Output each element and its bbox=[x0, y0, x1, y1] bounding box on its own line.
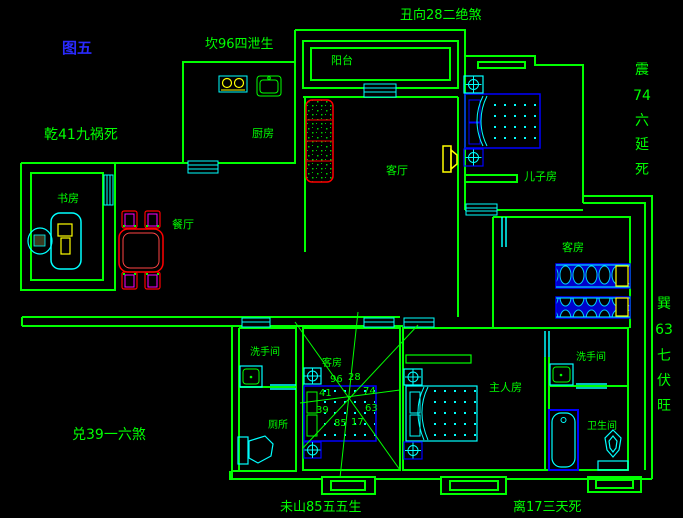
compass-number-28: 28 bbox=[348, 372, 361, 383]
room-label-dining: 餐厅 bbox=[172, 217, 194, 231]
compass-number-85: 85 bbox=[334, 418, 347, 429]
balcony-window bbox=[364, 84, 396, 97]
compass-number-63: 63 bbox=[365, 403, 378, 414]
compass-number-74: 74 bbox=[363, 386, 376, 397]
room-label-guest-right: 客房 bbox=[562, 240, 584, 254]
study-door bbox=[104, 175, 113, 205]
sofa bbox=[306, 100, 333, 182]
annotation-bottom-right: 离17三天死 bbox=[513, 499, 582, 515]
stove bbox=[219, 76, 247, 92]
room-label-washroom-left: 洗手间 bbox=[250, 345, 280, 358]
floorplan-drawing: 96 28 41 74 39 63 85 17 图五 坎96四泄生 丑向28二绝… bbox=[0, 0, 683, 518]
figure-label: 图五 bbox=[62, 39, 92, 57]
kitchen-window bbox=[188, 161, 218, 173]
annotation-left: 乾41九祸死 bbox=[44, 127, 118, 143]
compass-number-96: 96 bbox=[330, 374, 343, 385]
room-label-bathroom: 卫生间 bbox=[587, 419, 617, 432]
annotation-top: 丑向28二绝煞 bbox=[400, 7, 482, 23]
annotation-bottom-left: 未山85五五生 bbox=[280, 500, 362, 515]
west-wall-window-a bbox=[242, 318, 270, 327]
room-label-washroom-right: 洗手间 bbox=[576, 350, 606, 363]
annotation-right-lower-char-2: 七 bbox=[657, 348, 671, 364]
room-label-guest-middle: 客房 bbox=[322, 356, 342, 369]
room-label-sons-room: 儿子房 bbox=[524, 170, 557, 183]
annotation-right-lower-char-0: 巽 bbox=[657, 296, 671, 312]
annotation-right-lower-char-3: 伏 bbox=[657, 373, 671, 389]
floorplan-canvas: 96 28 41 74 39 63 85 17 图五 坎96四泄生 丑向28二绝… bbox=[0, 0, 683, 518]
compass-number-17: 17 bbox=[351, 417, 364, 428]
compass-number-39: 39 bbox=[316, 405, 329, 416]
annotation-upper-left: 坎96四泄生 bbox=[205, 37, 274, 52]
west-wall-window-c bbox=[404, 318, 434, 327]
room-label-study: 书房 bbox=[57, 192, 79, 205]
annotation-right-upper-char-1: 74 bbox=[633, 88, 651, 104]
annotation-right-upper-char-4: 死 bbox=[635, 162, 649, 178]
annotation-right-upper-char-0: 震 bbox=[635, 62, 649, 78]
annotation-lower-left: 兑39一六煞 bbox=[72, 427, 146, 443]
west-wall-window-b bbox=[364, 318, 394, 327]
annotation-right-lower-char-1: 63 bbox=[655, 322, 673, 338]
room-label-toilet: 厕所 bbox=[268, 419, 288, 431]
room-label-living: 客厅 bbox=[386, 163, 408, 177]
room-label-balcony: 阳台 bbox=[331, 53, 353, 67]
annotation-right-upper-char-2: 六 bbox=[635, 113, 649, 129]
room-label-kitchen: 厨房 bbox=[252, 127, 274, 140]
annotation-right-lower-char-4: 旺 bbox=[657, 398, 671, 414]
annotation-right-upper-char-3: 延 bbox=[635, 137, 649, 153]
compass-number-41: 41 bbox=[319, 388, 332, 399]
room-label-master: 主人房 bbox=[489, 381, 522, 394]
sons-room-window bbox=[466, 204, 497, 215]
